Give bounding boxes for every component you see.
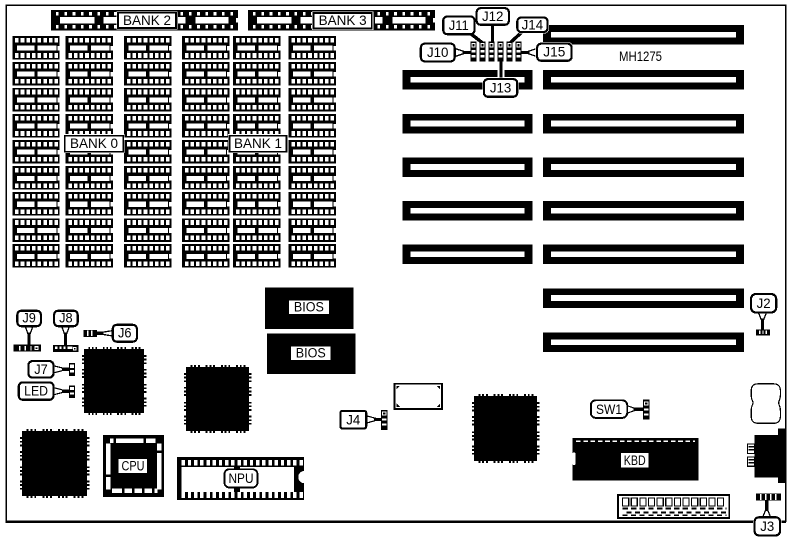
svg-text:J14: J14 [522, 16, 544, 32]
svg-text:KBD: KBD [624, 453, 646, 468]
svg-text:BIOS: BIOS [294, 300, 324, 315]
svg-text:SW1: SW1 [596, 401, 622, 417]
svg-text:BANK 1: BANK 1 [234, 135, 282, 151]
svg-text:J3: J3 [760, 518, 774, 534]
svg-text:LED: LED [24, 383, 48, 399]
svg-text:J12: J12 [482, 8, 504, 24]
svg-text:J15: J15 [543, 44, 565, 60]
svg-text:J6: J6 [118, 325, 132, 341]
svg-text:J11: J11 [449, 17, 469, 33]
svg-text:NPU: NPU [229, 470, 254, 486]
svg-text:BANK 3: BANK 3 [319, 12, 367, 28]
svg-text:J9: J9 [22, 310, 36, 326]
svg-text:BANK 0: BANK 0 [70, 135, 118, 151]
svg-text:J2: J2 [757, 295, 771, 311]
svg-text:J7: J7 [34, 361, 48, 377]
svg-text:BIOS: BIOS [296, 346, 326, 361]
svg-text:J13: J13 [490, 80, 512, 96]
svg-text:MH1275: MH1275 [619, 49, 662, 64]
svg-text:BANK 2: BANK 2 [123, 12, 171, 28]
svg-text:J10: J10 [427, 44, 449, 60]
svg-text:J4: J4 [346, 412, 360, 428]
svg-text:J8: J8 [59, 310, 73, 326]
svg-text:CPU: CPU [122, 459, 145, 474]
